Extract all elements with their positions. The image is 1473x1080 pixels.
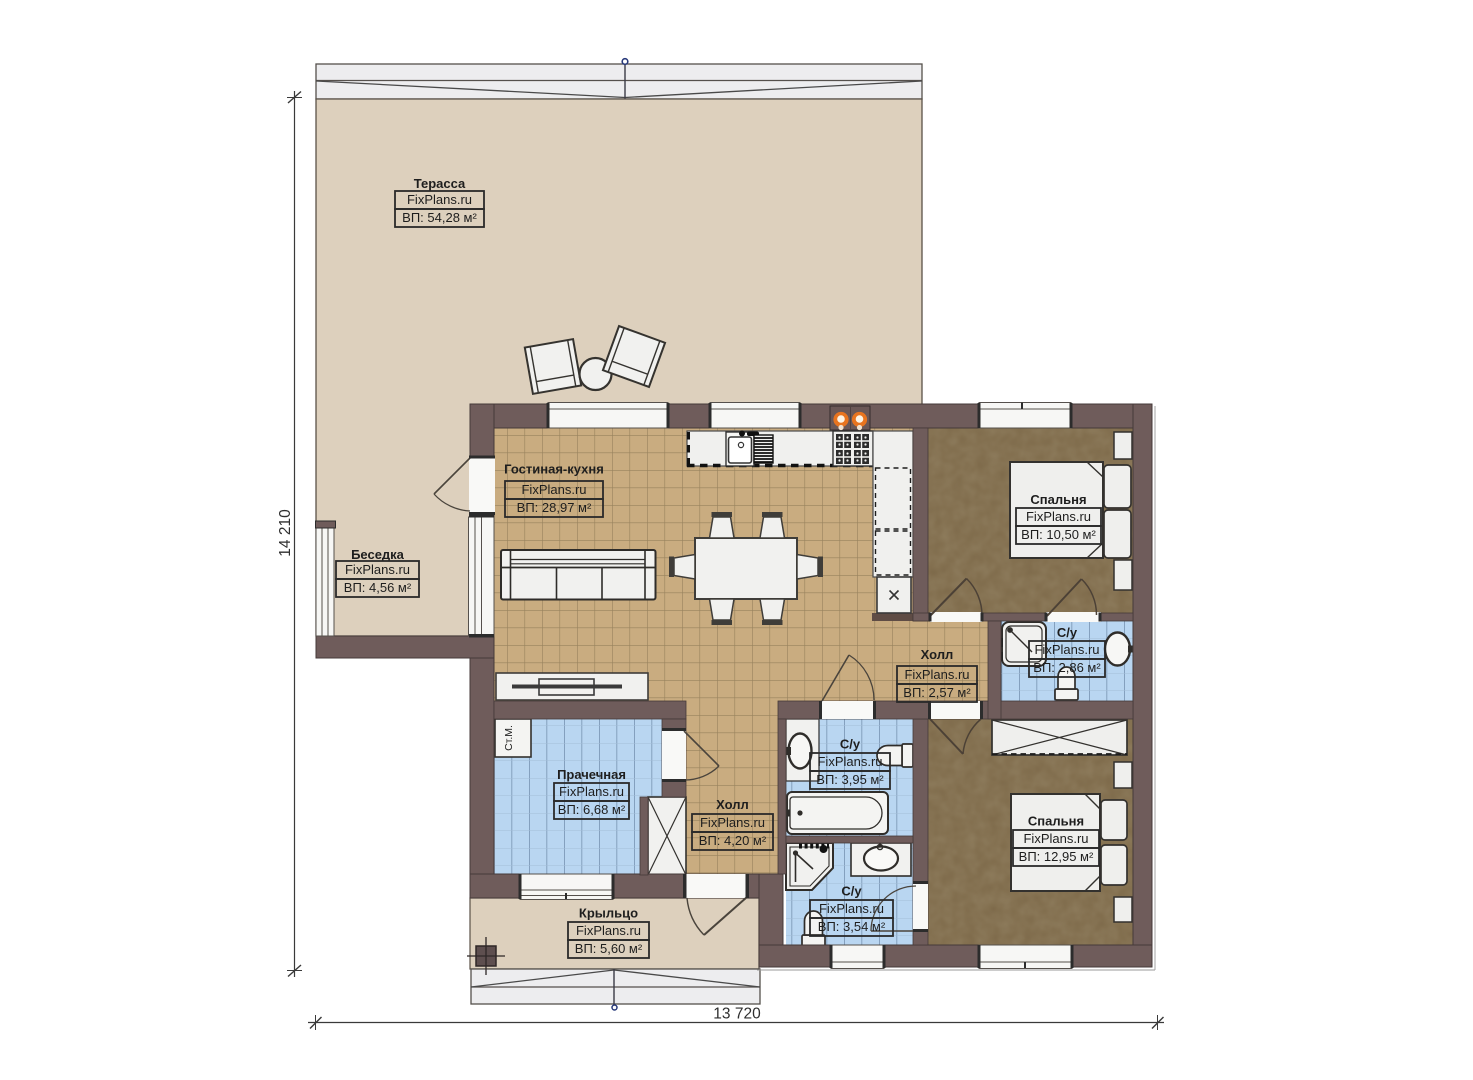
svg-text:ВП: 4,56 м²: ВП: 4,56 м² bbox=[344, 580, 412, 595]
svg-text:FixPlans.ru: FixPlans.ru bbox=[407, 192, 472, 207]
svg-text:13 720: 13 720 bbox=[713, 1006, 761, 1023]
svg-text:FixPlans.ru: FixPlans.ru bbox=[521, 482, 586, 497]
svg-text:ВП: 3,95 м²: ВП: 3,95 м² bbox=[816, 772, 884, 787]
svg-text:Спальня: Спальня bbox=[1030, 492, 1086, 507]
svg-text:FixPlans.ru: FixPlans.ru bbox=[700, 815, 765, 830]
svg-text:ВП: 5,60 м²: ВП: 5,60 м² bbox=[575, 941, 643, 956]
svg-text:ВП: 2,86 м²: ВП: 2,86 м² bbox=[1033, 660, 1101, 675]
svg-text:С/у: С/у bbox=[840, 737, 861, 752]
svg-text:Холл: Холл bbox=[716, 797, 749, 812]
svg-text:FixPlans.ru: FixPlans.ru bbox=[819, 901, 884, 916]
svg-text:Спальня: Спальня bbox=[1028, 814, 1084, 829]
svg-text:14 210: 14 210 bbox=[277, 509, 294, 557]
svg-text:FixPlans.ru: FixPlans.ru bbox=[904, 667, 969, 682]
svg-text:ВП: 6,68 м²: ВП: 6,68 м² bbox=[558, 802, 626, 817]
svg-text:ВП: 4,20 м²: ВП: 4,20 м² bbox=[699, 833, 767, 848]
svg-text:FixPlans.ru: FixPlans.ru bbox=[1034, 642, 1099, 657]
svg-text:ВП: 28,97 м²: ВП: 28,97 м² bbox=[517, 500, 592, 515]
svg-text:Прачечная: Прачечная bbox=[557, 767, 626, 782]
svg-text:ВП: 54,28 м²: ВП: 54,28 м² bbox=[402, 210, 477, 225]
svg-text:Крыльцо: Крыльцо bbox=[579, 906, 638, 921]
svg-text:Беседка: Беседка bbox=[351, 547, 405, 562]
svg-text:FixPlans.ru: FixPlans.ru bbox=[345, 562, 410, 577]
svg-text:FixPlans.ru: FixPlans.ru bbox=[1026, 509, 1091, 524]
svg-text:ВП: 3,54 м²: ВП: 3,54 м² bbox=[818, 919, 886, 934]
svg-text:Гостиная-кухня: Гостиная-кухня bbox=[504, 462, 604, 477]
svg-text:Холл: Холл bbox=[921, 647, 954, 662]
svg-text:FixPlans.ru: FixPlans.ru bbox=[559, 784, 624, 799]
svg-text:Терасса: Терасса bbox=[414, 176, 466, 191]
svg-text:Ст.М.: Ст.М. bbox=[503, 725, 515, 751]
svg-text:FixPlans.ru: FixPlans.ru bbox=[817, 754, 882, 769]
svg-text:FixPlans.ru: FixPlans.ru bbox=[1023, 831, 1088, 846]
svg-text:ВП: 2,57 м²: ВП: 2,57 м² bbox=[903, 685, 971, 700]
svg-text:ВП: 12,95 м²: ВП: 12,95 м² bbox=[1019, 849, 1094, 864]
svg-text:С/у: С/у bbox=[1057, 625, 1078, 640]
svg-text:FixPlans.ru: FixPlans.ru bbox=[576, 923, 641, 938]
svg-text:С/у: С/у bbox=[841, 884, 862, 899]
svg-text:ВП: 10,50 м²: ВП: 10,50 м² bbox=[1021, 527, 1096, 542]
